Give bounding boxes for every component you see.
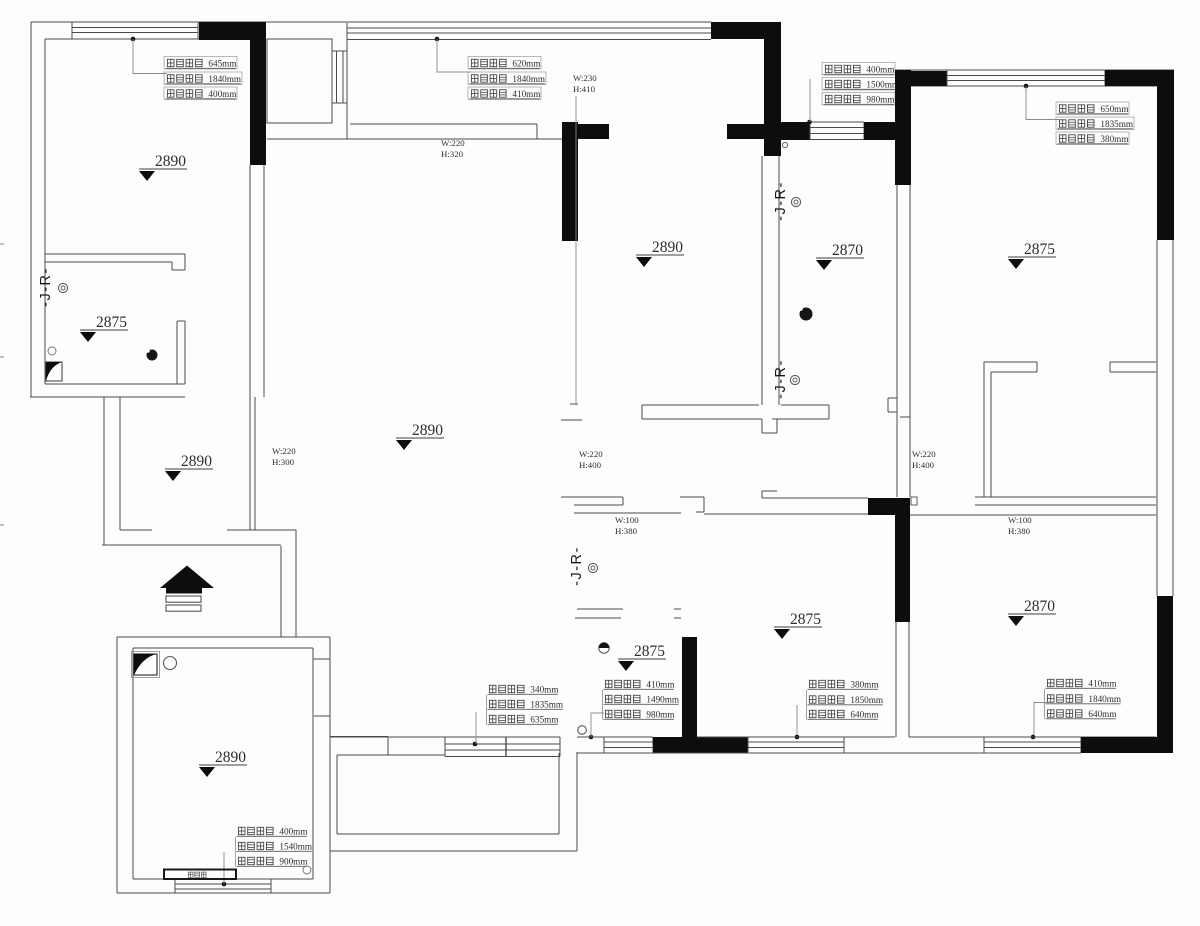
svg-text:H:320: H:320: [441, 149, 464, 159]
svg-text:2890: 2890: [215, 749, 246, 766]
svg-text:W:220: W:220: [272, 446, 296, 456]
svg-text:W:220: W:220: [912, 449, 936, 459]
svg-text:635mm: 635mm: [530, 715, 558, 725]
svg-text:H:400: H:400: [912, 460, 935, 470]
svg-text:400mm: 400mm: [208, 89, 236, 99]
svg-text:650mm: 650mm: [1100, 104, 1128, 114]
svg-text:1540mm: 1540mm: [279, 842, 312, 852]
svg-text:1835mm: 1835mm: [1100, 119, 1133, 129]
svg-text:380mm: 380mm: [1100, 134, 1128, 144]
svg-text:340mm: 340mm: [530, 685, 558, 695]
svg-text:1500mm: 1500mm: [866, 80, 899, 90]
svg-text:2890: 2890: [155, 153, 186, 170]
svg-text:410mm: 410mm: [1088, 679, 1116, 689]
svg-text:2875: 2875: [96, 314, 127, 331]
svg-text:620mm: 620mm: [512, 59, 540, 69]
svg-text:H:300: H:300: [272, 457, 295, 467]
svg-text:W:220: W:220: [579, 449, 603, 459]
svg-text:H:400: H:400: [579, 460, 602, 470]
svg-text:-J-R-: -J-R-: [38, 267, 54, 307]
svg-text:1840mm: 1840mm: [512, 74, 545, 84]
svg-text:W:220: W:220: [441, 138, 465, 148]
svg-text:1490mm: 1490mm: [646, 695, 679, 705]
svg-text:380mm: 380mm: [850, 680, 878, 690]
svg-text:2875: 2875: [634, 643, 665, 660]
svg-text:H:410: H:410: [573, 84, 596, 94]
svg-text:2870: 2870: [1024, 598, 1055, 615]
svg-text:1840mm: 1840mm: [208, 74, 241, 84]
svg-text:645mm: 645mm: [208, 59, 236, 69]
svg-text:-J-R-: -J-R-: [569, 546, 585, 586]
svg-text:1840mm: 1840mm: [1088, 694, 1121, 704]
svg-text:2890: 2890: [181, 453, 212, 470]
svg-text:980mm: 980mm: [646, 710, 674, 720]
svg-text:900mm: 900mm: [279, 857, 307, 867]
svg-text:2875: 2875: [1024, 241, 1055, 258]
svg-text:410mm: 410mm: [646, 680, 674, 690]
svg-text:W:100: W:100: [615, 515, 639, 525]
svg-text:640mm: 640mm: [1088, 709, 1116, 719]
svg-text:H:380: H:380: [1008, 526, 1031, 536]
svg-text:2870: 2870: [832, 242, 863, 259]
svg-text:2875: 2875: [790, 611, 821, 628]
svg-text:410mm: 410mm: [512, 89, 540, 99]
svg-text:400mm: 400mm: [279, 827, 307, 837]
svg-text:-J-R-: -J-R-: [773, 359, 789, 399]
svg-text:W:100: W:100: [1008, 515, 1032, 525]
svg-text:980mm: 980mm: [866, 95, 894, 105]
svg-text:1850mm: 1850mm: [850, 695, 883, 705]
svg-text:2890: 2890: [412, 422, 443, 439]
svg-text:640mm: 640mm: [850, 710, 878, 720]
svg-text:2890: 2890: [652, 239, 683, 256]
svg-text:H:380: H:380: [615, 526, 638, 536]
svg-text:-J-R-: -J-R-: [773, 181, 789, 221]
svg-text:1835mm: 1835mm: [530, 700, 563, 710]
svg-text:W:230: W:230: [573, 73, 597, 83]
svg-text:400mm: 400mm: [866, 65, 894, 75]
